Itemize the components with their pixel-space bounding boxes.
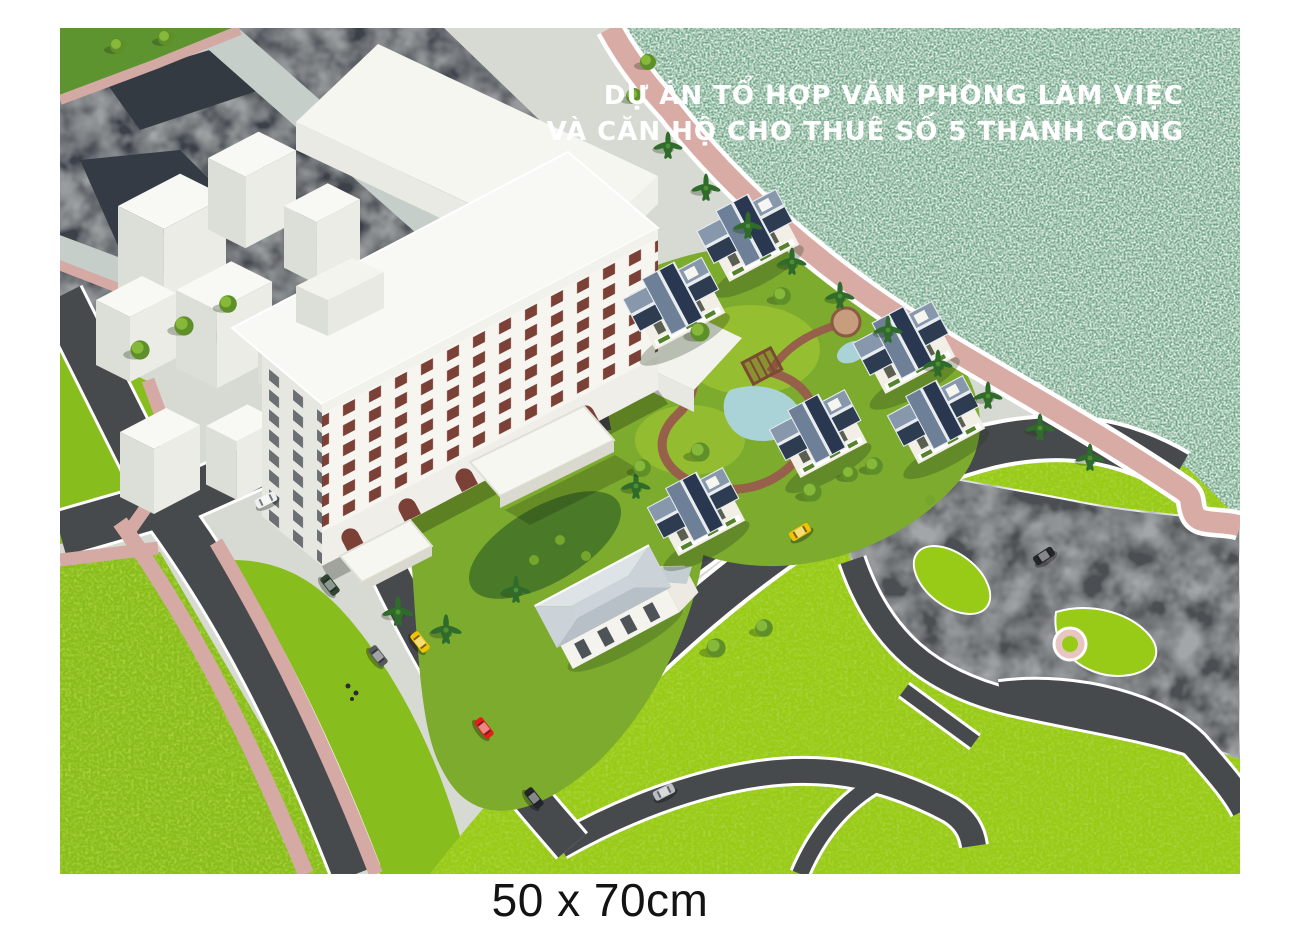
shrub <box>925 495 935 505</box>
poster-canvas: DỰ ÁN TỔ HỢP VĂN PHÒNG LÀM VIỆC VÀ CĂN H… <box>0 0 1299 945</box>
size-caption: 50 x 70cm <box>492 874 709 926</box>
garden-plaza <box>832 308 860 336</box>
shrub <box>555 535 565 545</box>
project-title: DỰ ÁN TỔ HỢP VĂN PHÒNG LÀM VIỆC VÀ CĂN H… <box>547 73 1184 147</box>
shrub <box>581 551 591 561</box>
shrub <box>529 555 539 565</box>
project-title-line2: VÀ CĂN HỘ CHO THUÊ SỐ 5 THÀNH CÔNG <box>547 111 1184 147</box>
architectural-rendering: DỰ ÁN TỔ HỢP VĂN PHÒNG LÀM VIỆC VÀ CĂN H… <box>0 0 1299 945</box>
